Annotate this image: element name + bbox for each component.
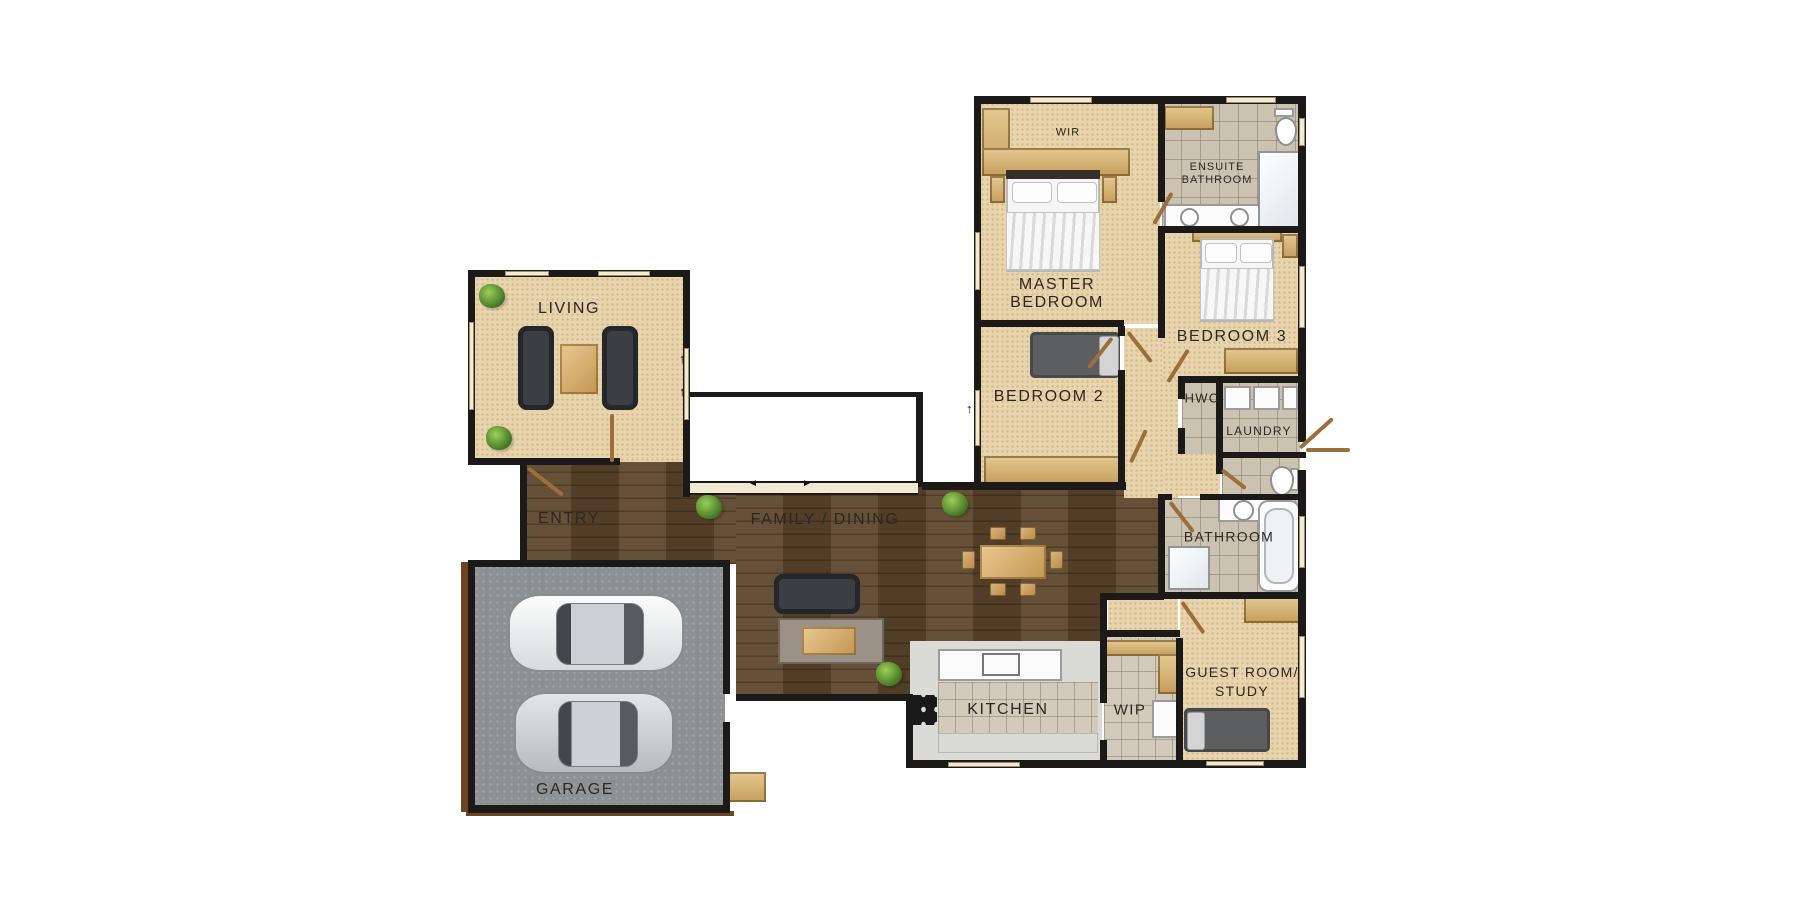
- wall-segment: [1178, 428, 1185, 454]
- pillow: [1057, 182, 1097, 203]
- master-bed-blanket: [1006, 212, 1100, 270]
- window: [975, 232, 980, 290]
- plant-icon: [876, 662, 902, 686]
- room-label-bedroom2: BEDROOM 2: [994, 388, 1104, 406]
- wall-segment: [922, 482, 1126, 490]
- room-label-family-dining: FAMILY / DINING: [751, 511, 900, 529]
- laundry-bench: [1282, 386, 1298, 410]
- wall-segment: [1178, 376, 1306, 383]
- wall-segment: [1176, 638, 1183, 762]
- room-label-ensuite-line1: ENSUITE: [1182, 161, 1253, 174]
- window: [469, 322, 474, 410]
- wall-segment: [468, 458, 620, 465]
- wall-segment: [1158, 232, 1165, 338]
- ensuite-sink: [1230, 208, 1249, 227]
- wall-segment: [468, 270, 690, 277]
- room-label-wip: WIP: [1114, 702, 1147, 719]
- room-label-living: LIVING: [538, 300, 600, 318]
- wall-segment: [1298, 470, 1306, 768]
- room-label-bedroom3: BEDROOM 3: [1177, 328, 1287, 346]
- ensuite-cabinet: [1164, 106, 1214, 130]
- room-label-guest: GUEST ROOM/ STUDY: [1185, 663, 1299, 701]
- wall-segment: [468, 805, 730, 813]
- wall-segment: [1100, 593, 1164, 600]
- room-label-garage: GARAGE: [536, 781, 614, 799]
- room-label-kitchen: KITCHEN: [967, 701, 1048, 719]
- door-swing: [1306, 448, 1350, 452]
- ensuite-shower: [1258, 151, 1300, 229]
- wall-segment: [1200, 494, 1306, 500]
- wall-segment: [736, 694, 913, 701]
- wall-segment: [1158, 494, 1165, 598]
- room-label-master-line1: MASTER: [1010, 276, 1104, 294]
- bathroom-shower: [1168, 546, 1210, 590]
- bedside-table: [990, 176, 1005, 203]
- wall-segment: [906, 694, 913, 767]
- plant-icon: [486, 426, 512, 450]
- garage-cladding-left: [461, 562, 468, 812]
- ensuite-sink: [1180, 208, 1199, 227]
- dining-chair: [1020, 583, 1036, 596]
- dining-table: [980, 545, 1046, 579]
- window: [948, 762, 1020, 767]
- wall-segment: [1118, 326, 1125, 336]
- wall-segment: [723, 722, 730, 812]
- master-bed-headboard: [1006, 170, 1100, 179]
- plant-icon: [696, 495, 722, 519]
- car-hatchback: [514, 692, 674, 774]
- guest-desk: [1244, 597, 1300, 623]
- kitchen-sink: [982, 653, 1020, 676]
- window: [1299, 516, 1305, 568]
- wall-segment: [1216, 452, 1306, 458]
- room-label-hwc: HWC: [1185, 391, 1220, 406]
- slider-arrow-left-icon: ◄: [748, 479, 758, 489]
- window: [1299, 636, 1305, 698]
- wall-segment: [974, 320, 1124, 327]
- car-sedan: [508, 594, 684, 672]
- wall-segment: [1158, 226, 1306, 233]
- garage-exterior-step: [728, 772, 766, 802]
- patio-void: [690, 397, 918, 483]
- window: [1299, 266, 1305, 328]
- plant-icon: [942, 492, 968, 516]
- window: [598, 271, 650, 276]
- wall-segment: [520, 462, 527, 562]
- plant-icon: [479, 284, 505, 308]
- wall-segment: [468, 560, 730, 567]
- room-label-master-bedroom: MASTER BEDROOM: [1010, 276, 1104, 312]
- kitchen-bench: [938, 733, 1098, 753]
- room-label-guest-line2: STUDY: [1185, 682, 1299, 701]
- window: [1030, 97, 1092, 103]
- bedroom3-wardrobe: [1224, 348, 1298, 374]
- wall-segment: [916, 392, 923, 487]
- dining-chair: [1050, 551, 1063, 569]
- pantry-shelf-side: [1158, 654, 1178, 694]
- window: [975, 390, 980, 446]
- wall-segment: [723, 560, 730, 694]
- wall-segment: [1100, 593, 1107, 703]
- family-couch: [774, 574, 860, 614]
- wall-segment: [1100, 630, 1180, 637]
- wall-segment: [1118, 370, 1125, 488]
- room-label-laundry: LAUNDRY: [1226, 424, 1292, 438]
- window: [1206, 761, 1264, 766]
- wall-segment: [468, 560, 475, 812]
- console-board: [802, 627, 856, 655]
- dining-chair: [962, 551, 975, 569]
- bathroom-sink: [1233, 500, 1254, 521]
- sofa-right: [602, 326, 638, 410]
- wall-segment: [1158, 104, 1165, 202]
- hallway-floor-2: [1164, 452, 1220, 496]
- laundry-tub: [1253, 386, 1280, 410]
- wall-segment: [1158, 592, 1306, 599]
- room-label-bathroom: BATHROOM: [1184, 528, 1274, 547]
- bedside-table: [1102, 176, 1117, 203]
- washing-machine: [1224, 386, 1251, 410]
- cooktop: [911, 695, 937, 725]
- door-direction-arrow-icon: ↑: [679, 385, 686, 398]
- pillow: [1187, 712, 1205, 750]
- sofa-left: [518, 326, 554, 410]
- room-label-ensuite: ENSUITE BATHROOM: [1182, 161, 1253, 187]
- car-roof: [556, 603, 644, 666]
- room-label-wir: WIR: [1056, 127, 1080, 140]
- dining-chair: [990, 527, 1006, 540]
- door-direction-arrow-icon: ↑: [966, 402, 973, 415]
- coffee-table: [560, 344, 598, 394]
- dining-chair: [990, 583, 1006, 596]
- room-label-ensuite-line2: BATHROOM: [1182, 174, 1253, 187]
- door-direction-arrow-icon: ↑: [679, 352, 686, 365]
- pantry-sink: [1152, 700, 1178, 738]
- bedroom2-wardrobe: [984, 456, 1120, 484]
- slider-arrow-right-icon: ►: [802, 479, 812, 489]
- room-label-entry: ENTRY: [538, 510, 600, 528]
- pillow: [1240, 243, 1272, 263]
- bedroom3-bed-blanket: [1200, 268, 1274, 320]
- room-label-guest-line1: GUEST ROOM/: [1185, 663, 1299, 682]
- window: [505, 271, 549, 276]
- room-label-master-line2: BEDROOM: [1010, 294, 1104, 312]
- wall-segment: [690, 392, 923, 397]
- window: [1226, 97, 1276, 103]
- window: [1299, 118, 1305, 146]
- pillow: [1012, 182, 1052, 203]
- pillow: [1205, 243, 1237, 263]
- bedside-table: [1282, 234, 1298, 258]
- ensuite-toilet-tank: [1274, 108, 1294, 117]
- dining-chair: [1020, 527, 1036, 540]
- door-swing: [610, 414, 614, 462]
- car-roof: [558, 701, 638, 767]
- floor-plan: ◄ ► ↑ ↑ ↑ LIVING ENTRY GARAGE FAMILY / D…: [0, 0, 1800, 900]
